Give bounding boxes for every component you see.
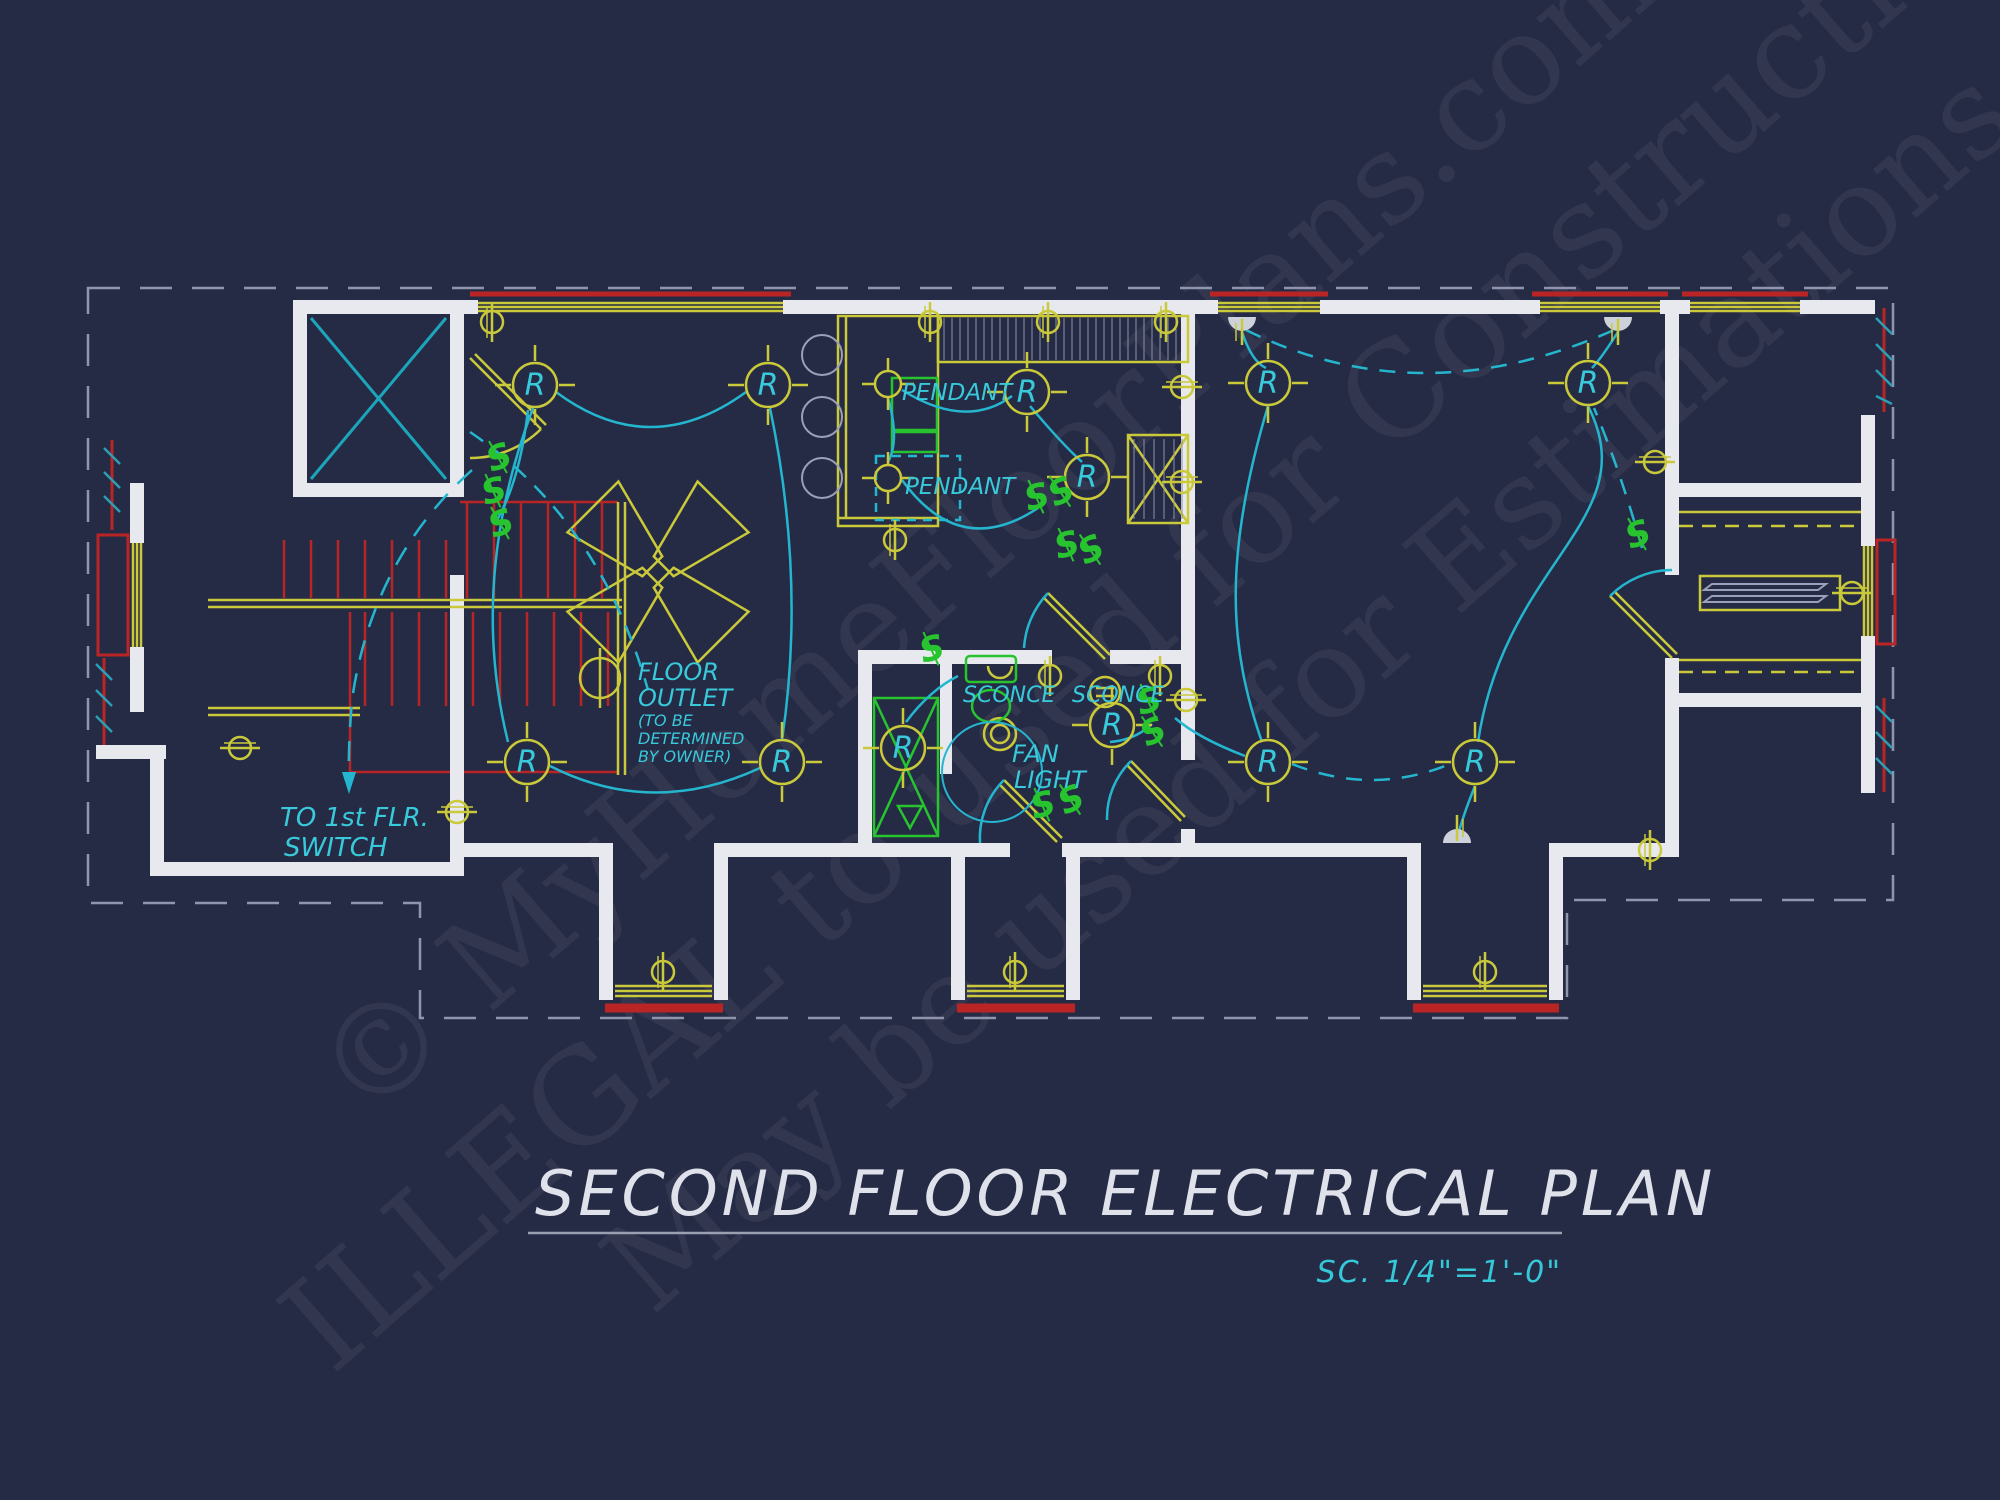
sconce-label: SCONCE: [1072, 683, 1164, 708]
switch-symbol: S: [483, 501, 520, 547]
svg-text:R: R: [772, 745, 793, 780]
svg-text:R: R: [1258, 745, 1279, 780]
svg-text:R: R: [1017, 375, 1038, 410]
svg-text:R: R: [1102, 708, 1123, 743]
appliance: [892, 432, 937, 452]
svg-text:R: R: [893, 731, 914, 766]
svg-text:R: R: [1578, 366, 1599, 401]
outlet-symbol: [220, 737, 260, 759]
arrowhead: [342, 772, 356, 794]
louver-slats: [1704, 584, 1826, 602]
page-title: SECOND FLOOR ELECTRICAL PLAN: [535, 1157, 1716, 1230]
floor-outlet-label: FLOOR: [638, 658, 719, 686]
floor-outlet-label: BY OWNER): [638, 747, 731, 766]
floor-outlet-label: (TO BE: [638, 711, 694, 730]
ceiling-fan: [567, 481, 748, 662]
svg-text:R: R: [1077, 460, 1098, 495]
svg-text:R: R: [1258, 366, 1279, 401]
watermark-layer: © MyHomeFloorPlans.com ILLEGAL to used f…: [145, 0, 2000, 1500]
scale-label: SC. 1/4"=1'-0": [1317, 1255, 1562, 1290]
floor-plan-canvas: © MyHomeFloorPlans.com ILLEGAL to used f…: [0, 0, 2000, 1500]
pendant-label: PENDANT: [905, 474, 1017, 500]
outlet-symbol: [1832, 582, 1872, 604]
svg-text:R: R: [525, 368, 546, 403]
recessed-light-symbol: R: [495, 345, 575, 425]
stair-note: TO 1st FLR.: [280, 803, 429, 833]
fan-light-label: LIGHT: [1014, 766, 1088, 794]
svg-text:R: R: [758, 368, 779, 403]
recessed-light-symbol: R: [1435, 722, 1515, 802]
pendant-label: PENDANT: [902, 380, 1014, 406]
svg-text:R: R: [1465, 745, 1486, 780]
wall-sconce-symbol: [1443, 815, 1471, 843]
svg-text:R: R: [517, 745, 538, 780]
stair-rail: [208, 502, 625, 775]
floor-outlet-label: DETERMINED: [638, 729, 744, 748]
recessed-light-symbol: R: [728, 345, 808, 425]
fan-light-label: FAN: [1012, 740, 1059, 768]
bar-stool: [802, 335, 842, 498]
switch-symbol: S: [1620, 512, 1657, 558]
blueprint-page: © MyHomeFloorPlans.com ILLEGAL to used f…: [0, 0, 2000, 1500]
recessed-light-symbol: R: [487, 722, 567, 802]
chase-x: [311, 318, 446, 479]
stair-note: SWITCH: [284, 833, 387, 863]
sconce-label: SCONCE: [963, 683, 1055, 708]
door: [1610, 592, 1677, 658]
louver-vent: [1700, 576, 1840, 610]
floor-outlet-label: OUTLET: [638, 684, 735, 712]
